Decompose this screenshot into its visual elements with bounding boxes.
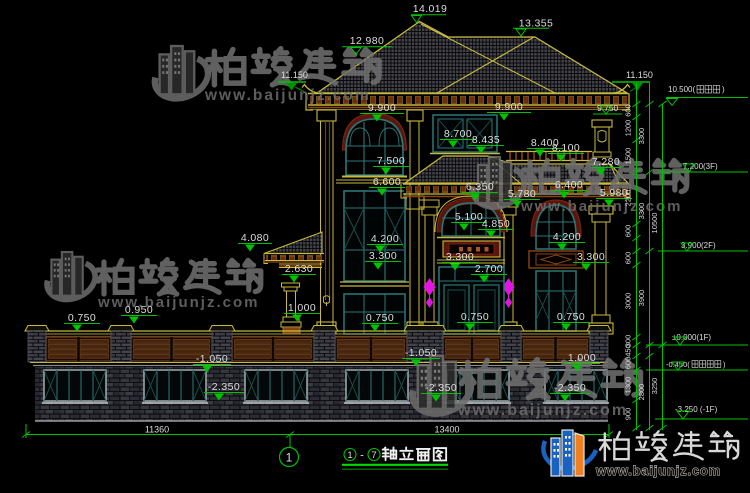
svg-text:0.750: 0.750	[68, 312, 96, 324]
svg-text:1: 1	[347, 450, 352, 461]
svg-text:): )	[722, 85, 725, 94]
svg-text:-3.250 (-1F): -3.250 (-1F)	[675, 405, 718, 414]
svg-text:13400: 13400	[434, 425, 459, 435]
svg-text:2.630: 2.630	[285, 263, 313, 275]
svg-text:5.100: 5.100	[455, 211, 483, 223]
svg-text:10.500(: 10.500(	[668, 85, 695, 94]
svg-text:3000: 3000	[624, 293, 633, 310]
svg-text:5.780: 5.780	[508, 188, 536, 200]
svg-text:www.baijunjz.com: www.baijunjz.com	[97, 294, 259, 311]
svg-text:2200: 2200	[624, 190, 633, 207]
svg-text:-0.450(: -0.450(	[666, 360, 690, 369]
svg-text:8.435: 8.435	[472, 134, 500, 146]
svg-text:1500: 1500	[624, 148, 633, 165]
svg-text:11.150: 11.150	[281, 70, 308, 80]
svg-text:0.750: 0.750	[461, 311, 489, 323]
svg-text:3250: 3250	[650, 378, 659, 395]
svg-text:www.baijunjz.com: www.baijunjz.com	[595, 463, 721, 478]
svg-text:9.900: 9.900	[368, 102, 396, 114]
svg-text:11.150: 11.150	[626, 70, 653, 80]
svg-text:1300: 1300	[624, 377, 633, 394]
svg-text:3.300: 3.300	[369, 250, 397, 262]
svg-text:600: 600	[624, 225, 633, 238]
svg-text:-1.050: -1.050	[196, 353, 228, 365]
svg-text:4.850: 4.850	[482, 218, 510, 230]
svg-text:600: 600	[624, 104, 633, 117]
svg-text:www.baijunjz.com: www.baijunjz.com	[520, 198, 682, 215]
svg-text:12.980: 12.980	[350, 35, 385, 47]
svg-text:7.200(3F): 7.200(3F)	[683, 162, 718, 171]
svg-text:3300: 3300	[637, 128, 646, 145]
svg-text:www.baijunjz.com: www.baijunjz.com	[204, 87, 371, 104]
svg-text:7: 7	[371, 450, 376, 461]
svg-text:-: -	[360, 450, 364, 462]
svg-text:-2.350: -2.350	[208, 381, 240, 393]
svg-text:-2.350: -2.350	[425, 382, 457, 394]
svg-text:2.700: 2.700	[475, 263, 503, 275]
svg-text:3900: 3900	[637, 290, 646, 307]
svg-text:3.900(2F): 3.900(2F)	[681, 241, 716, 250]
svg-text:6.350: 6.350	[466, 181, 494, 193]
svg-text:-2.350: -2.350	[554, 382, 586, 394]
svg-text:6.400: 6.400	[555, 179, 583, 191]
svg-text:7.500: 7.500	[377, 155, 405, 167]
svg-text:8.100: 8.100	[552, 142, 580, 154]
svg-text:9.900: 9.900	[495, 101, 523, 113]
svg-text:4.080: 4.080	[241, 232, 269, 244]
svg-text:-1.050: -1.050	[405, 347, 437, 359]
svg-text:7.280: 7.280	[592, 156, 620, 168]
svg-text:1.000: 1.000	[568, 352, 596, 364]
svg-text:900: 900	[624, 408, 633, 421]
svg-text:0.750: 0.750	[557, 311, 585, 323]
svg-text:4.200: 4.200	[553, 231, 581, 243]
svg-text:14.019: 14.019	[413, 3, 448, 15]
svg-text:0.750: 0.750	[366, 312, 394, 324]
svg-text:11360: 11360	[145, 425, 169, 435]
svg-text:600: 600	[624, 252, 633, 265]
svg-text:600: 600	[624, 357, 633, 370]
svg-text:0.950: 0.950	[125, 304, 153, 316]
svg-text:8.700: 8.700	[444, 128, 472, 140]
svg-text:www.baijunjz.com: www.baijunjz.com	[457, 402, 628, 419]
svg-text:1.000: 1.000	[288, 302, 316, 314]
svg-text:450: 450	[624, 344, 633, 357]
svg-text:6.600: 6.600	[373, 176, 401, 188]
svg-text:3300: 3300	[637, 203, 646, 220]
svg-text:3.300: 3.300	[446, 251, 474, 263]
svg-text:3.300: 3.300	[577, 251, 605, 263]
svg-text:4.200: 4.200	[371, 233, 399, 245]
svg-text:2800: 2800	[637, 384, 646, 401]
svg-text:1: 1	[286, 451, 293, 465]
svg-text:1200: 1200	[624, 120, 633, 137]
svg-text:10500: 10500	[650, 213, 659, 234]
